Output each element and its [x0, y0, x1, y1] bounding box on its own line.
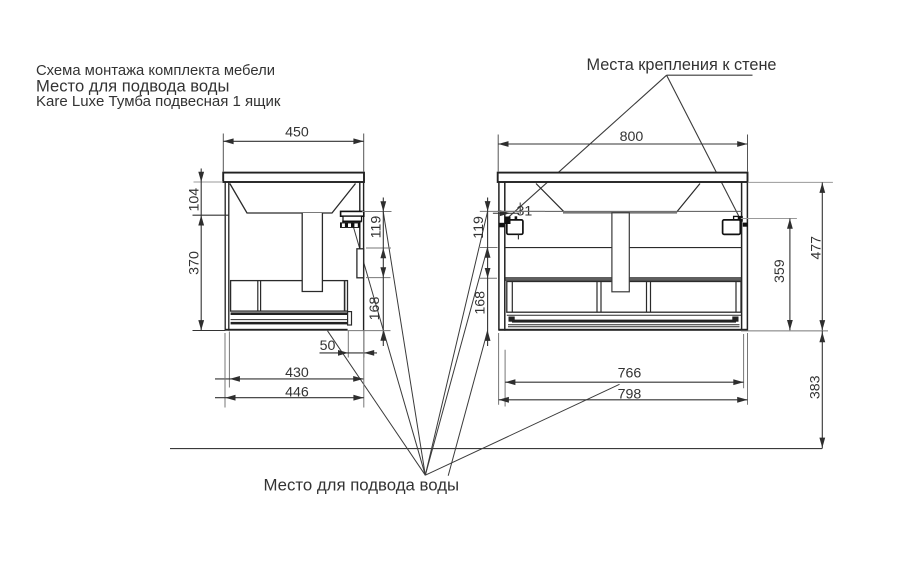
svg-text:800: 800 [620, 129, 644, 145]
svg-text:766: 766 [618, 365, 642, 381]
svg-text:370: 370 [186, 251, 202, 275]
svg-text:446: 446 [285, 385, 309, 401]
svg-text:119: 119 [471, 216, 487, 239]
svg-text:Места крепления к стене: Места крепления к стене [587, 56, 777, 74]
svg-text:119: 119 [369, 216, 385, 239]
svg-text:450: 450 [285, 125, 309, 141]
svg-text:383: 383 [807, 375, 823, 399]
svg-text:Место для подвода воды: Место для подвода воды [264, 475, 460, 494]
svg-text:430: 430 [285, 365, 309, 381]
svg-text:798: 798 [618, 387, 642, 403]
svg-text:Kare Luxe Тумба подвесная 1 ящ: Kare Luxe Тумба подвесная 1 ящик [36, 93, 281, 110]
svg-text:50: 50 [320, 338, 336, 354]
svg-text:104: 104 [186, 188, 202, 212]
svg-text:168: 168 [367, 297, 383, 321]
svg-text:168: 168 [473, 291, 489, 315]
svg-text:477: 477 [809, 236, 825, 260]
svg-text:359: 359 [772, 259, 788, 283]
